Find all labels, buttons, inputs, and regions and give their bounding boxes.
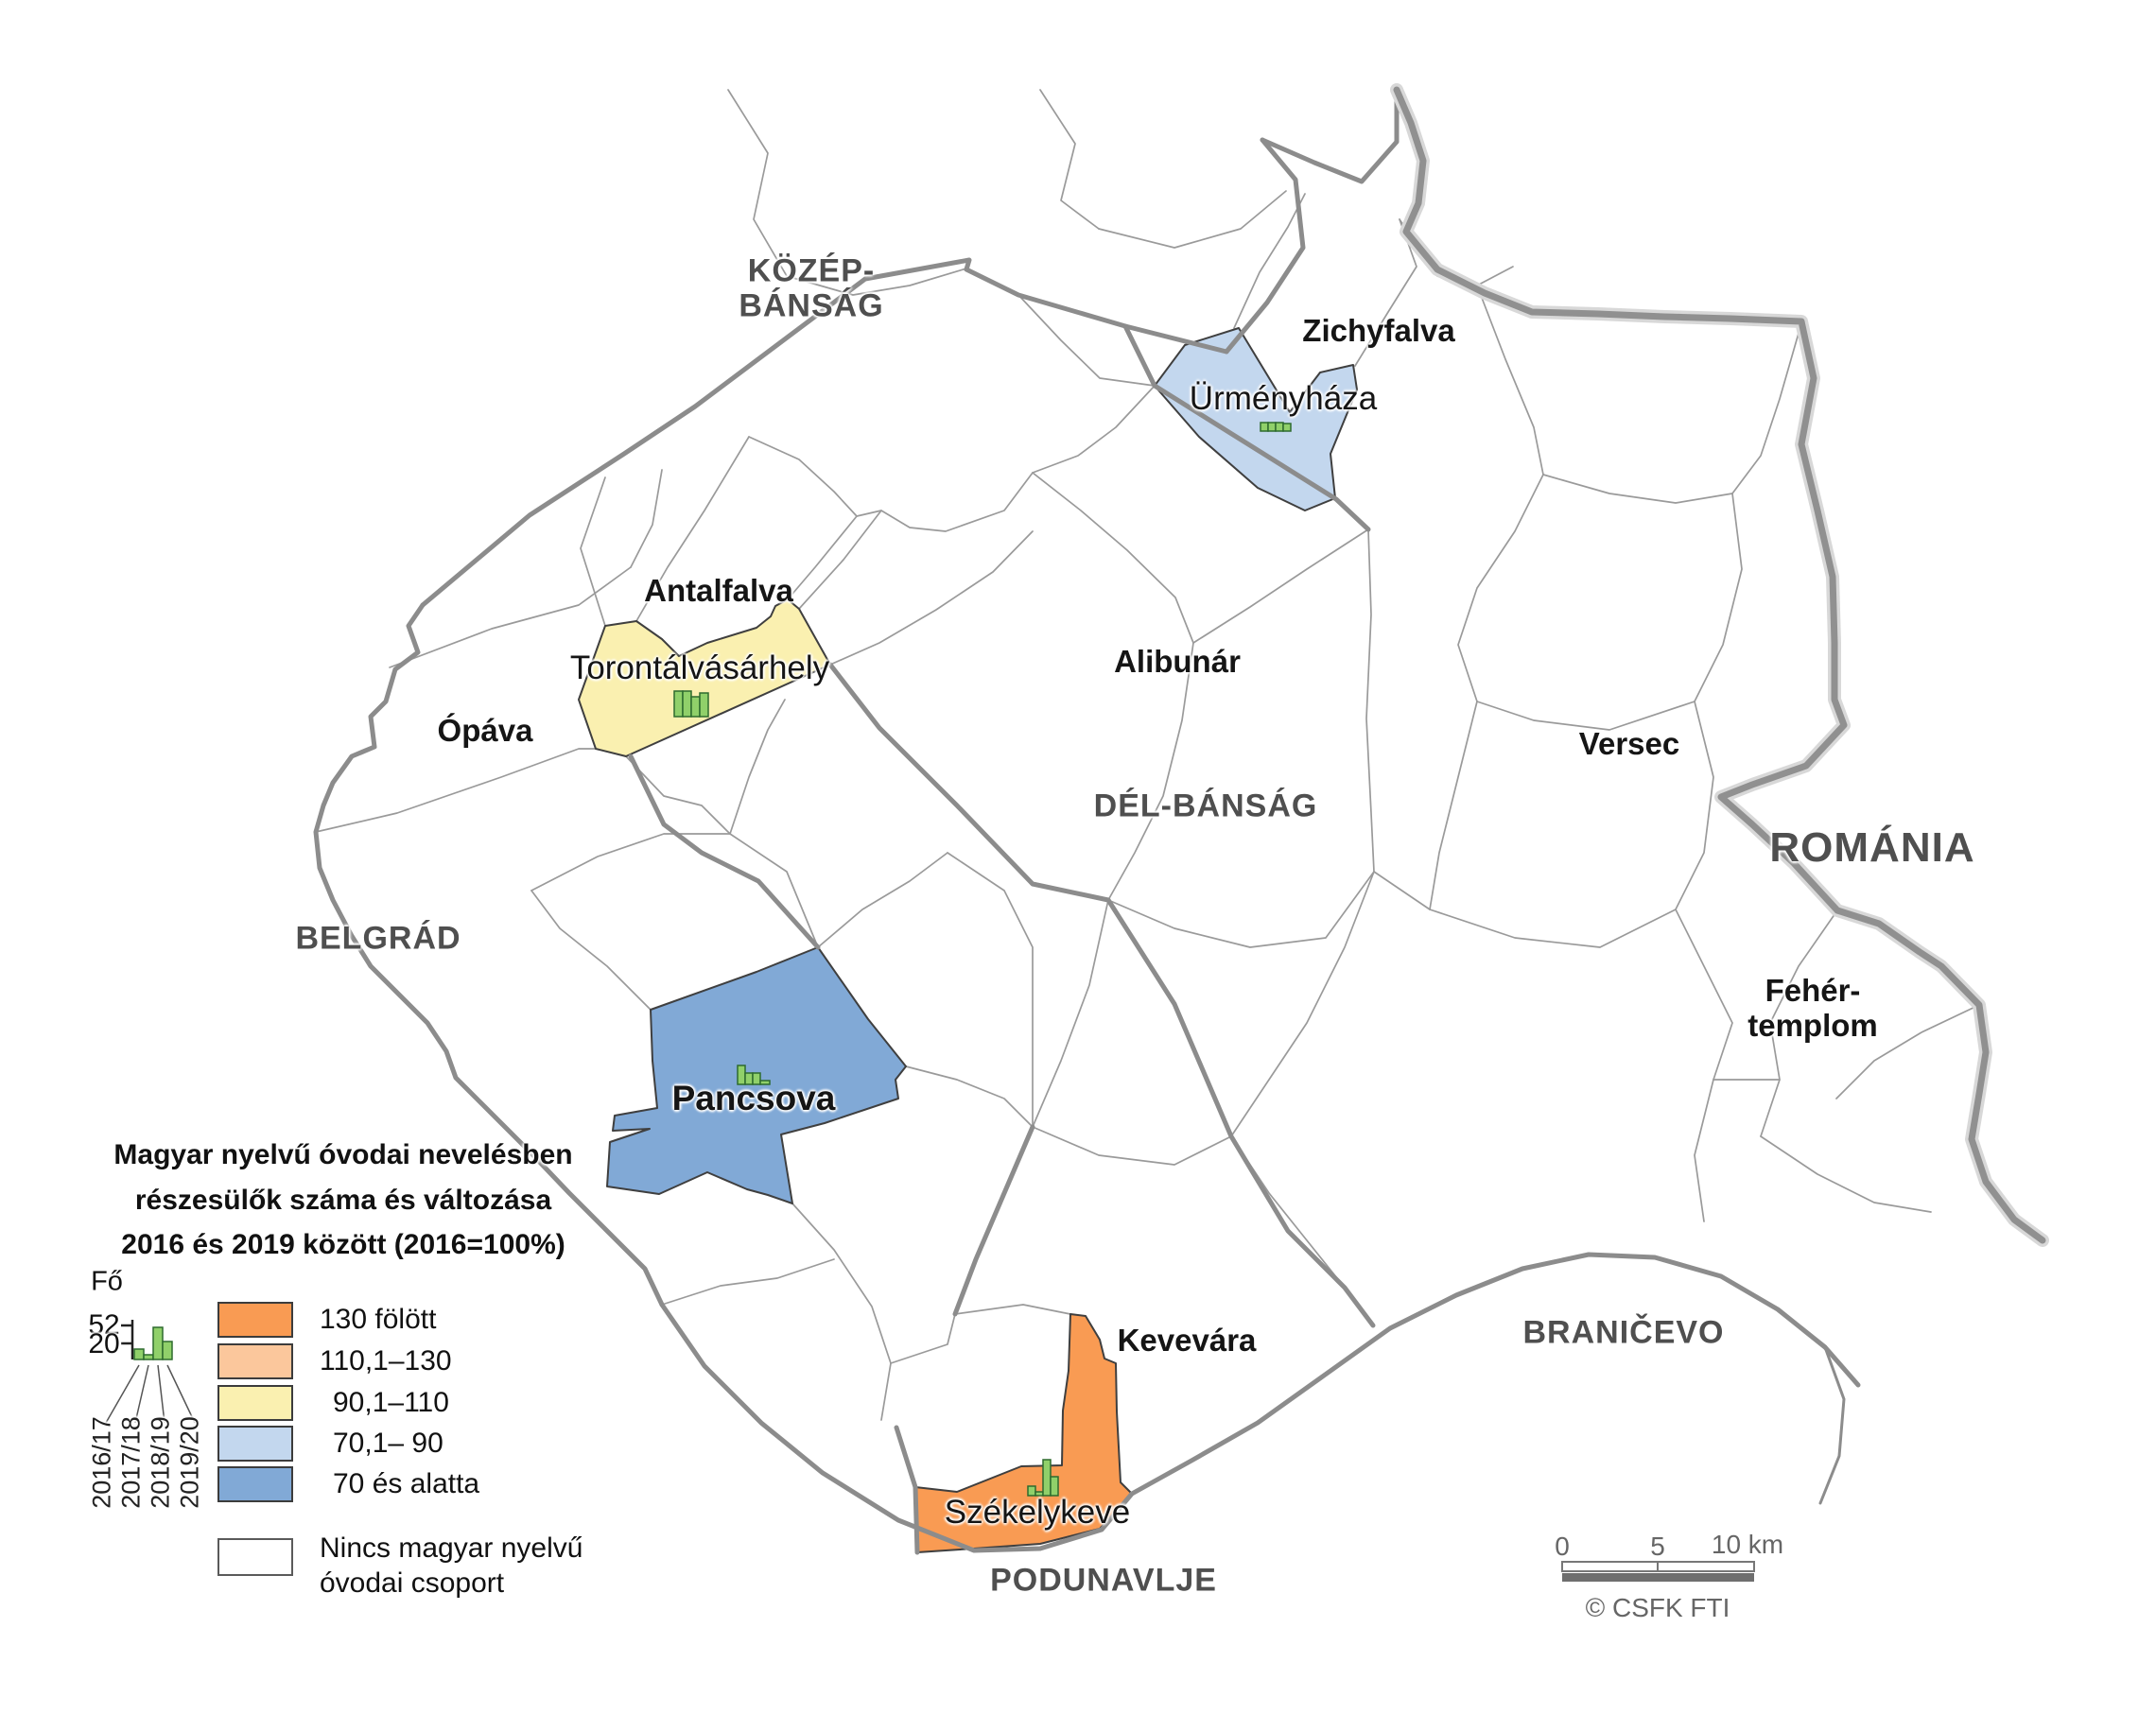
state-border-romania xyxy=(1397,90,2043,1240)
scale-label-10km: 10 km xyxy=(1712,1530,1783,1560)
district-border-pancsova-north xyxy=(631,756,818,947)
label-feher-templom-line2: templom xyxy=(1747,1008,1878,1044)
scale-bar-lower xyxy=(1562,1573,1754,1582)
title-line3: 2016 és 2019 között (2016=100%) xyxy=(121,1229,565,1261)
municipality-border xyxy=(1033,1127,1231,1165)
municipality-border xyxy=(1761,1136,1931,1212)
thin-borders xyxy=(316,90,1979,1420)
bar xyxy=(674,691,683,717)
municipality-border xyxy=(531,891,651,1010)
municipality-border xyxy=(662,1259,834,1305)
scale-label-0: 0 xyxy=(1555,1532,1570,1562)
municipality-border xyxy=(1193,529,1368,643)
label-zichyfalva: Zichyfalva xyxy=(1302,313,1454,349)
municipality-border xyxy=(728,90,787,276)
legend-swatch-110-130 xyxy=(217,1343,293,1379)
municipality-border xyxy=(1695,493,1742,701)
municipality-border xyxy=(1676,701,1713,909)
scale-bar xyxy=(1562,1562,1754,1582)
legend-label-90-110: 90,1–110 xyxy=(333,1387,449,1419)
bar xyxy=(1283,424,1291,431)
legend-leader-line xyxy=(167,1365,195,1423)
label-kozep-bansag-line1: KÖZÉP- xyxy=(748,253,875,290)
municipality-border xyxy=(1430,909,1676,947)
municipality-border xyxy=(1732,323,1801,493)
municipality-border xyxy=(1033,386,1155,473)
legend-label-over-130: 130 fölött xyxy=(320,1304,436,1336)
legend-label-110-130: 110,1–130 xyxy=(320,1345,452,1377)
label-pancsova: Pancsova xyxy=(672,1079,836,1118)
municipality-border xyxy=(818,853,948,947)
legend-leader-line xyxy=(106,1365,139,1423)
municipality-border xyxy=(749,437,857,516)
municipality-border xyxy=(1108,643,1193,900)
legend-swatch-70-90 xyxy=(217,1426,293,1462)
label-kozep-bansag-line2: BÁNSÁG xyxy=(739,288,883,325)
municipality-border xyxy=(1477,267,1513,286)
label-del-bansag: DÉL-BÁNSÁG xyxy=(1094,788,1318,825)
label-urmenyhaza: Ürményháza xyxy=(1190,380,1377,418)
legend-year-2018-19: 2018/19 xyxy=(147,1416,176,1509)
municipality-border xyxy=(788,516,857,599)
label-alibunar: Alibunár xyxy=(1114,644,1241,680)
municipality-border xyxy=(581,477,605,626)
bar xyxy=(683,691,691,717)
municipality-border xyxy=(792,1203,891,1420)
legend-label-no-group-line2: óvodai csoport xyxy=(320,1567,504,1600)
municipality-border xyxy=(1033,473,1193,643)
district-border-south-short xyxy=(896,1428,917,1552)
label-feher-templom-line1: Fehér- xyxy=(1765,973,1861,1009)
legend-bar xyxy=(134,1349,144,1359)
municipality-border xyxy=(626,756,730,834)
label-podunavlje: PODUNAVLJE xyxy=(990,1563,1217,1600)
municipality-border xyxy=(1231,1136,1345,1288)
label-szekelykeve: Székelykeve xyxy=(945,1494,1130,1532)
municipality-border xyxy=(631,470,662,567)
label-antalfalva: Antalfalva xyxy=(644,573,793,609)
municipality-border xyxy=(1374,872,1430,909)
label-versec: Versec xyxy=(1579,726,1679,762)
legend-bar xyxy=(153,1327,163,1359)
bars-urmenyhaza xyxy=(1261,423,1291,431)
legend-year-2016-17: 2016/17 xyxy=(88,1416,117,1509)
municipality-border xyxy=(891,1314,955,1363)
region-urmenyhaza xyxy=(1155,328,1357,511)
bar xyxy=(691,697,700,717)
municipality-border xyxy=(1040,90,1099,229)
bar xyxy=(1268,423,1276,431)
district-border-kevevara-east xyxy=(1108,900,1373,1325)
label-branicevo: BRANIČEVO xyxy=(1522,1315,1724,1352)
romania-border-line xyxy=(1397,90,2043,1240)
scale-label-5: 5 xyxy=(1650,1532,1665,1562)
label-kevevara: Kevevára xyxy=(1118,1323,1257,1359)
legend-label-70-90: 70,1– 90 xyxy=(333,1428,443,1460)
municipality-border xyxy=(531,834,818,947)
municipality-border xyxy=(1430,701,1477,909)
legend-label-under-70: 70 és alatta xyxy=(333,1468,479,1500)
title-line1: Magyar nyelvű óvodai nevelésben xyxy=(113,1139,572,1171)
bar xyxy=(1043,1460,1051,1496)
legend-swatch-no-group xyxy=(217,1538,293,1576)
legend-leader-line xyxy=(158,1365,165,1423)
legend-tick-label-20: 20 xyxy=(88,1328,119,1360)
district-border-kevevara-west xyxy=(955,1127,1033,1314)
credit-csfk-fti: © CSFK FTI xyxy=(1586,1593,1730,1623)
municipality-border xyxy=(906,1066,1033,1127)
map-figure: KÖZÉP- BÁNSÁG BELGRÁD DÉL-BÁNSÁG ROMÁNIA… xyxy=(0,0,2156,1714)
bars-torontalvasarhely xyxy=(674,691,708,717)
municipality-border xyxy=(1033,900,1108,1127)
label-torontalvasarhely: Torontálvásárhely xyxy=(570,649,829,687)
municipality-border xyxy=(1366,529,1374,872)
legend-swatch-under-70 xyxy=(217,1466,293,1502)
legend-swatch-over-130 xyxy=(217,1302,293,1338)
municipality-border xyxy=(1543,475,1732,503)
romania-border-halo xyxy=(1397,90,2043,1240)
legend-unit-label: Fő xyxy=(91,1267,123,1298)
danube-river xyxy=(662,1255,1858,1550)
bar xyxy=(1276,423,1283,431)
municipality-border xyxy=(730,700,785,834)
district-border-kovacica-south xyxy=(830,665,1108,900)
municipality-border xyxy=(1676,909,1732,1080)
legend-leader-line xyxy=(135,1365,148,1423)
municipality-border xyxy=(1099,191,1286,248)
legend-year-2019-20: 2019/20 xyxy=(176,1416,205,1509)
colored-settlements xyxy=(579,328,1357,1552)
municipality-border xyxy=(316,749,596,832)
legend-year-2017-18: 2017/18 xyxy=(117,1416,147,1509)
municipality-border xyxy=(1458,475,1543,701)
river-branch xyxy=(1820,1347,1844,1503)
municipality-border xyxy=(830,531,1033,665)
title-line2: részesülők száma és változása xyxy=(135,1185,551,1217)
label-belgrad: BELGRÁD xyxy=(295,921,461,958)
municipality-border xyxy=(1231,872,1374,1136)
legend-swatch-90-110 xyxy=(217,1385,293,1421)
label-romania: ROMÁNIA xyxy=(1769,824,1974,872)
bar xyxy=(1051,1477,1058,1496)
legend-bar xyxy=(163,1342,172,1359)
label-opava: Ópáva xyxy=(438,713,533,749)
bar xyxy=(700,693,708,717)
bar xyxy=(1261,423,1268,431)
municipality-border xyxy=(1695,1080,1713,1221)
municipality-border xyxy=(1108,872,1374,947)
legend-bar xyxy=(144,1355,153,1359)
municipality-border xyxy=(948,853,1033,1127)
municipality-border xyxy=(799,511,881,609)
legend-label-no-group-line1: Nincs magyar nyelvű xyxy=(320,1532,582,1565)
municipality-border xyxy=(857,473,1033,531)
municipality-border xyxy=(955,1305,1070,1314)
